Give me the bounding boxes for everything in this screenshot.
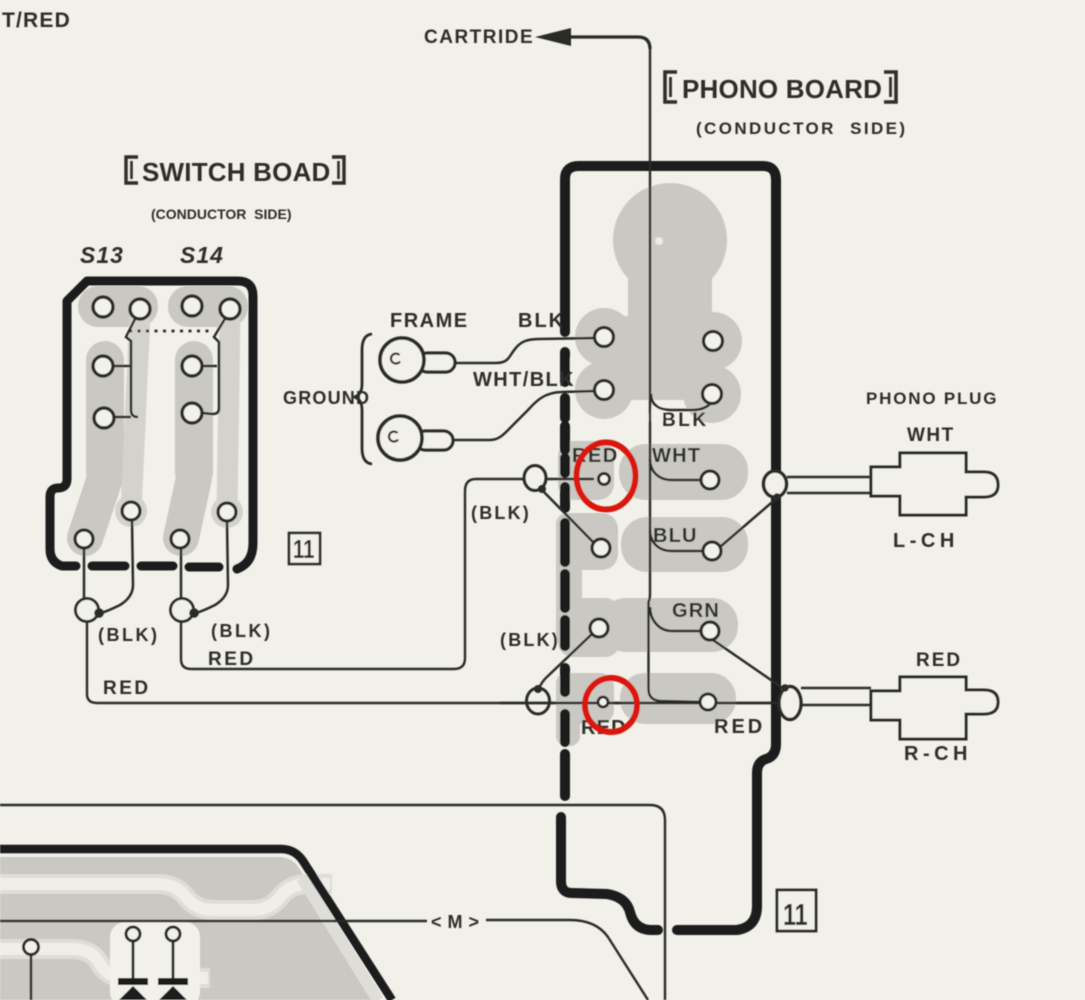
svg-text:BLK: BLK — [518, 310, 565, 332]
svg-text:PHONO BOARD: PHONO BOARD — [682, 74, 882, 104]
svg-text:WHT/BLK: WHT/BLK — [473, 369, 575, 391]
svg-text:RED: RED — [916, 650, 962, 671]
svg-text:L-CH: L-CH — [893, 530, 959, 552]
svg-text:11: 11 — [293, 535, 314, 564]
svg-text:WHT: WHT — [652, 445, 701, 467]
svg-text:(BLK): (BLK) — [471, 503, 531, 523]
svg-text:S13: S13 — [80, 242, 124, 268]
svg-text:RED: RED — [103, 678, 151, 699]
svg-text:(BLK): (BLK) — [211, 621, 272, 641]
svg-text:(BLK): (BLK) — [500, 630, 560, 650]
svg-text:RED: RED — [714, 716, 765, 738]
svg-text:GRN: GRN — [672, 600, 720, 622]
svg-text:(BLK): (BLK) — [98, 625, 159, 645]
svg-text:(CONDUCTOR SIDE): (CONDUCTOR SIDE) — [696, 119, 907, 138]
svg-text:WHT: WHT — [907, 425, 955, 446]
svg-text:PHONO PLUG: PHONO PLUG — [866, 389, 998, 408]
svg-text:CARTRIDE: CARTRIDE — [424, 27, 534, 48]
svg-text:BLK: BLK — [662, 410, 709, 431]
svg-text:11: 11 — [783, 897, 808, 932]
svg-text:T/RED: T/RED — [2, 9, 71, 32]
svg-text:RED: RED — [208, 649, 256, 670]
svg-text:S14: S14 — [180, 242, 224, 268]
svg-text:(CONDUCTOR SIDE): (CONDUCTOR SIDE) — [151, 206, 292, 222]
svg-text:FRAME: FRAME — [390, 310, 469, 332]
svg-text:R-CH: R-CH — [904, 743, 972, 765]
svg-text:<M>: <M> — [431, 912, 485, 932]
svg-text:BLU: BLU — [653, 525, 698, 547]
svg-text:SWITCH BOAD: SWITCH BOAD — [142, 157, 331, 187]
